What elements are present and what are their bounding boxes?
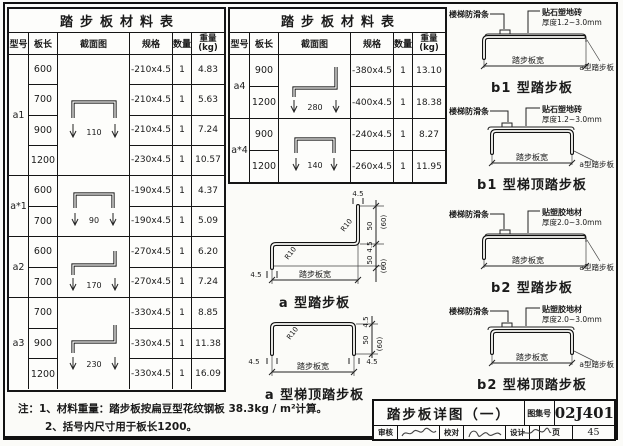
qty-cell: 1 [173, 268, 192, 298]
weight-cell: 11.38 [192, 329, 224, 359]
header-section: 截面图 [279, 33, 351, 54]
middle-material-table: 踏步板材料表 型号 板长 截面图 规格 数量 重量(kg) a4 900 120… [228, 7, 447, 184]
qty-cell: 1 [173, 207, 192, 237]
weight-cell: 5.63 [192, 85, 224, 114]
spec-cell: -270x4.5 [130, 237, 173, 267]
spec-cell: -190x4.5 [130, 207, 173, 237]
page-label: 页 [540, 426, 573, 439]
label-finish-thickness: 厚度2.0~3.0mm [542, 217, 602, 227]
model-cell: a2 [9, 237, 29, 297]
qty-cell: 1 [173, 176, 192, 206]
weight-cell: 13.10 [413, 55, 445, 86]
qty-cell: 1 [173, 55, 192, 84]
spec-cell: -230x4.5 [130, 146, 173, 175]
diagram-b1-step-plate: 楼梯防滑条 贴石塑地砖 厚度1.2~3.0mm 踏步板宽 a型踏步板 b1 型踏… [448, 6, 616, 96]
diagram-b1-top-caption: b1 型梯顶踏步板 [448, 174, 616, 193]
header-weight: 重量(kg) [413, 33, 445, 54]
section-dim: 90 [88, 216, 98, 225]
dim-radius-left: R10 [283, 245, 298, 261]
diagram-b1-drawing: 楼梯防滑条 贴石塑地砖 厚度1.2~3.0mm 踏步板宽 a型踏步板 [448, 6, 616, 72]
atlas-number-label: 图集号 [525, 401, 555, 425]
table-group-a1: a1 600 700 900 1200 110 -210x4.514.83 -2… [9, 55, 224, 176]
weight-cell: 5.09 [192, 207, 224, 237]
diagram-b2-top-step-plate: 楼梯防滑条 贴塑胶地材 厚度2.0~3.0mm 踏步板宽 a型踏步板 b2 型梯… [448, 303, 616, 393]
label-finish-thickness: 厚度1.2~3.0mm [542, 17, 602, 27]
weight-cell: 8.27 [413, 119, 445, 150]
model-cell: a*4 [230, 119, 250, 182]
length-cell: 700 [29, 298, 57, 329]
left-table-title: 踏步板材料表 [9, 9, 224, 33]
qty-cell: 1 [394, 151, 413, 182]
left-material-table: 踏步板材料表 型号 板长 截面图 规格 数量 重量(kg) a1 600 700… [7, 7, 226, 392]
diagram-a-drawing: 4.5 R10 R10 4.5 踏步板宽 (60) 50 4.5 50 (60) [226, 186, 431, 288]
label-antislip-strip: 楼梯防滑条 [449, 306, 490, 316]
weight-cell: 11.95 [413, 151, 445, 182]
model-cell: a4 [230, 55, 250, 118]
dim-plate-width: 踏步板宽 [512, 55, 544, 65]
atlas-number: 02J401 [555, 401, 614, 425]
dim-plate-width: 踏步板宽 [516, 152, 548, 162]
callout-a-plate: a型踏步板 [579, 159, 614, 169]
table-group-a4: a4 900 1200 280 -380x4.5113.10 -400x4.51… [230, 55, 445, 119]
length-cell: 600 [29, 237, 57, 268]
qty-cell: 1 [173, 298, 192, 328]
dim-chain-5: (60) [380, 259, 388, 274]
diagram-a-step-plate: 4.5 R10 R10 4.5 踏步板宽 (60) 50 4.5 50 (60)… [226, 186, 431, 311]
section-dim: 230 [86, 360, 101, 369]
diagram-a-top-drawing: R10 4.5 4.5 踏步板宽 4.5 50 (60) [226, 302, 431, 380]
spec-cell: -260x4.5 [351, 151, 394, 182]
note-line-1: 注：1、材料重量：踏步板按扁豆型花纹钢板 38.3kg / m²计算。 [18, 401, 327, 419]
length-cell: 1200 [29, 146, 57, 175]
section-diagram-channel: 90 [58, 176, 130, 236]
label-finish-thickness: 厚度2.0~3.0mm [542, 314, 602, 324]
diagram-b2-step-plate: 楼梯防滑条 贴塑胶地材 厚度2.0~3.0mm 踏步板宽 a型踏步板 b2 型踏… [448, 206, 616, 296]
qty-cell: 1 [394, 119, 413, 150]
spec-cell: -330x4.5 [130, 298, 173, 328]
length-cell: 1200 [250, 151, 278, 182]
section-dim: 170 [86, 281, 101, 290]
label-finish: 贴石塑地砖 [542, 7, 582, 17]
spec-cell: -400x4.5 [351, 87, 394, 118]
section-diagram-channel: 110 [58, 55, 130, 175]
header-model: 型号 [9, 33, 29, 54]
spec-cell: -270x4.5 [130, 268, 173, 298]
spec-cell: -380x4.5 [351, 55, 394, 86]
callout-a-plate: a型踏步板 [579, 62, 614, 72]
dim-plate-width: 踏步板宽 [516, 352, 548, 362]
header-section: 截面图 [58, 33, 130, 54]
qty-cell: 1 [173, 359, 192, 389]
length-cell: 1200 [29, 359, 57, 389]
qty-cell: 1 [173, 237, 192, 267]
header-qty: 数量 [173, 33, 192, 54]
spec-cell: -190x4.5 [130, 176, 173, 206]
label-finish-thickness: 厚度1.2~3.0mm [542, 114, 602, 124]
diagram-b1-top-step-plate: 楼梯防滑条 贴石塑地砖 厚度1.2~3.0mm 踏步板宽 a型踏步板 b1 型梯… [448, 103, 616, 193]
table-group-a4s: a*4 900 1200 140 -240x4.518.27 -260x4.51… [230, 119, 445, 182]
section-diagram-channel: 140 [279, 119, 351, 182]
length-cell: 900 [29, 329, 57, 360]
qty-cell: 1 [394, 55, 413, 86]
length-cell: 1200 [250, 87, 278, 118]
header-qty: 数量 [394, 33, 413, 54]
spec-cell: -210x4.5 [130, 55, 173, 84]
middle-table-header: 型号 板长 截面图 规格 数量 重量(kg) [230, 33, 445, 55]
diagram-a-top-step-plate: R10 4.5 4.5 踏步板宽 4.5 50 (60) a 型梯顶踏步板 [226, 302, 431, 403]
callout-a-plate: a型踏步板 [579, 262, 614, 272]
page-number: 45 [573, 426, 614, 439]
length-cell: 700 [29, 207, 57, 237]
diagram-b2-caption: b2 型踏步板 [448, 277, 616, 296]
label-antislip-strip: 楼梯防滑条 [449, 9, 490, 19]
weight-cell: 10.57 [192, 146, 224, 175]
qty-cell: 1 [173, 146, 192, 175]
dim-chain-3: (60) [376, 337, 384, 352]
weight-cell: 4.37 [192, 176, 224, 206]
section-dim: 140 [307, 161, 322, 170]
weight-cell: 6.20 [192, 237, 224, 267]
table-group-a3: a3 700 900 1200 230 -330x4.518.85 -330x4… [9, 298, 224, 389]
header-weight: 重量(kg) [192, 33, 224, 54]
label-finish: 贴石塑地砖 [542, 104, 582, 114]
label-antislip-strip: 楼梯防滑条 [449, 106, 490, 116]
drawing-sheet: 踏步板材料表 型号 板长 截面图 规格 数量 重量(kg) a1 600 700… [0, 0, 623, 446]
notes: 注：1、材料重量：踏步板按扁豆型花纹钢板 38.3kg / m²计算。 2、括号… [18, 401, 327, 437]
length-cell: 700 [29, 85, 57, 115]
length-cell: 600 [29, 176, 57, 207]
qty-cell: 1 [394, 87, 413, 118]
header-length: 板长 [250, 33, 279, 54]
qty-cell: 1 [173, 85, 192, 114]
section-dim: 110 [86, 128, 101, 137]
diagram-b2-drawing: 楼梯防滑条 贴塑胶地材 厚度2.0~3.0mm 踏步板宽 a型踏步板 [448, 206, 616, 272]
weight-cell: 4.83 [192, 55, 224, 84]
spec-cell: -210x4.5 [130, 85, 173, 114]
model-cell: a1 [9, 55, 29, 175]
header-length: 板长 [29, 33, 58, 54]
model-cell: a*1 [9, 176, 29, 236]
signature-proofreader [464, 426, 506, 439]
spec-cell: -210x4.5 [130, 116, 173, 145]
middle-table-title: 踏步板材料表 [230, 9, 445, 33]
title-block: 踏步板详图（一） 图集号 02J401 审核 校对 设计 页 45 [372, 399, 616, 441]
label-antislip-strip: 楼梯防滑条 [449, 209, 490, 219]
dim-chain-3: 4.5 [366, 241, 374, 252]
spec-cell: -330x4.5 [130, 359, 173, 389]
header-model: 型号 [230, 33, 250, 54]
dim-radius-right: R10 [339, 217, 354, 233]
qty-cell: 1 [173, 116, 192, 145]
spec-cell: -330x4.5 [130, 329, 173, 359]
signature-designer [530, 426, 540, 439]
weight-cell: 18.38 [413, 87, 445, 118]
diagram-b2-top-drawing: 楼梯防滑条 贴塑胶地材 厚度2.0~3.0mm 踏步板宽 a型踏步板 [448, 303, 616, 369]
label-finish: 贴塑胶地材 [542, 207, 582, 217]
dim-left-thickness: 4.5 [248, 358, 259, 366]
spec-cell: -240x4.5 [351, 119, 394, 150]
dim-chain-4: 50 [366, 256, 374, 265]
dim-chain-1: 4.5 [362, 316, 370, 327]
dim-right-thickness: 4.5 [366, 358, 377, 366]
note-line-2: 2、括号内尺寸用于板长1200。 [45, 419, 327, 437]
proofread-label: 校对 [440, 426, 464, 439]
dim-plate-width: 踏步板宽 [297, 361, 329, 371]
drawing-title: 踏步板详图（一） [374, 401, 525, 425]
dim-chain-1: (60) [380, 215, 388, 230]
length-cell: 700 [29, 268, 57, 298]
table-group-a2: a2 600 700 170 -270x4.516.20 -270x4.517.… [9, 237, 224, 298]
section-diagram-z: 280 [279, 55, 351, 118]
dim-chain-2: 50 [366, 222, 374, 231]
diagram-b2-top-caption: b2 型梯顶踏步板 [448, 374, 616, 393]
section-diagram-z: 170 [58, 237, 130, 297]
length-cell: 900 [29, 116, 57, 146]
dim-top-thickness: 4.5 [352, 190, 363, 198]
length-cell: 900 [250, 55, 278, 87]
table-group-a1s: a*1 600 700 90 -190x4.514.37 -190x4.515.… [9, 176, 224, 237]
dim-chain-2: 50 [362, 336, 370, 345]
signature-reviewer [398, 426, 440, 439]
diagram-b1-top-drawing: 楼梯防滑条 贴石塑地砖 厚度1.2~3.0mm 踏步板宽 a型踏步板 [448, 103, 616, 169]
dim-plate-width: 踏步板宽 [512, 255, 544, 265]
model-cell: a3 [9, 298, 29, 389]
section-diagram-z: 230 [58, 298, 130, 389]
section-dim: 280 [307, 103, 322, 112]
diagram-b1-caption: b1 型踏步板 [448, 77, 616, 96]
qty-cell: 1 [173, 329, 192, 359]
length-cell: 600 [29, 55, 57, 85]
label-finish: 贴塑胶地材 [542, 304, 582, 314]
dim-plate-width: 踏步板宽 [299, 269, 331, 279]
review-label: 审核 [374, 426, 398, 439]
left-table-header: 型号 板长 截面图 规格 数量 重量(kg) [9, 33, 224, 55]
header-spec: 规格 [130, 33, 173, 54]
header-spec: 规格 [351, 33, 394, 54]
dim-radius: R10 [285, 325, 300, 341]
callout-a-plate: a型踏步板 [579, 359, 614, 369]
weight-cell: 7.24 [192, 116, 224, 145]
dim-left-thickness: 4.5 [250, 271, 261, 279]
length-cell: 900 [250, 119, 278, 151]
